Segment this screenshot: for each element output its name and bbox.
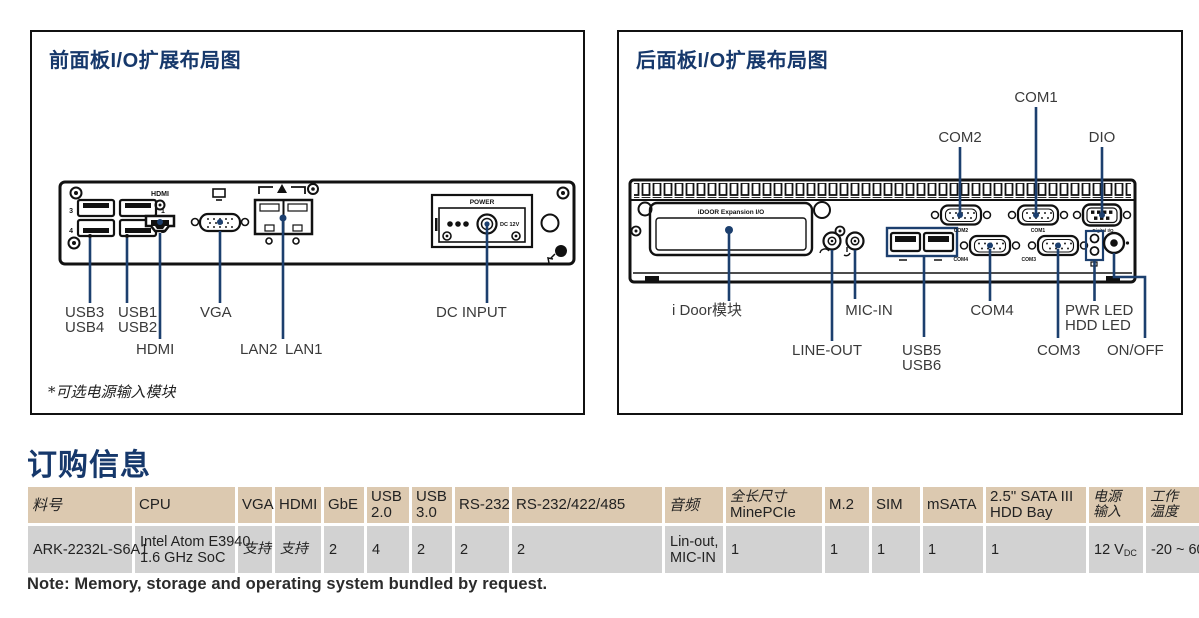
col-usb30: USB3.0 [412, 487, 452, 523]
col-m2: M.2 [825, 487, 869, 523]
cell-cpu-line1: Intel Atom E3940 [140, 534, 230, 550]
col-usb20-line2: 2.0 [371, 505, 405, 521]
col-power-input: 电源输入 [1089, 487, 1143, 523]
cell-minepcie: 1 [726, 526, 822, 573]
col-cpu: CPU [135, 487, 235, 523]
dc12v-text: DC 12V [500, 222, 520, 228]
cell-audio: Lin-out,MIC-IN [665, 526, 723, 573]
col-rs232-422-485: RS-232/422/485 [512, 487, 662, 523]
col-power-line1: 电源 [1093, 490, 1139, 505]
col-audio: 音频 [665, 487, 723, 523]
label-on-off: ON/OFF [1107, 342, 1164, 359]
col-gbe: GbE [324, 487, 364, 523]
col-usb20: USB2.0 [367, 487, 409, 523]
col-power-line2: 输入 [1093, 505, 1139, 520]
col-rs232: RS-232 [455, 487, 509, 523]
ground-screw-icon [555, 245, 567, 257]
cell-m2: 1 [825, 526, 869, 573]
usb4-number: 4 [69, 228, 73, 235]
cell-audio-line1: Lin-out, [670, 534, 718, 550]
rear-panel-box: 后面板I/O扩展布局图 iDOOR Expansion I/O [617, 30, 1183, 415]
cell-usb30: 2 [412, 526, 452, 573]
usb3-number: 3 [69, 208, 73, 215]
cell-cpu-line2: 1.6 GHz SoC [140, 550, 230, 566]
front-panel-box: 前面板I/O扩展布局图 3 4 [30, 30, 585, 415]
power-module-text: POWER [470, 199, 495, 206]
label-com3: COM3 [1037, 342, 1080, 359]
col-minepcie-line1: 全长尺寸 [730, 490, 818, 505]
col-sim: SIM [872, 487, 920, 523]
label-usb4: USB4 [65, 319, 104, 336]
label-usb2: USB2 [118, 319, 157, 336]
ordering-heading: 订购信息 [27, 440, 151, 484]
label-lan1: LAN1 [285, 341, 323, 358]
cell-usb20: 4 [367, 526, 409, 573]
label-hdd-led: HDD LED [1065, 317, 1131, 334]
label-lan2: LAN2 [240, 341, 278, 358]
cell-gbe: 2 [324, 526, 364, 573]
col-vga: VGA [238, 487, 272, 523]
col-hdmi: HDMI [275, 487, 321, 523]
table-row: ARK-2232L-S6A1 Intel Atom E39401.6 GHz S… [28, 526, 1199, 573]
col-temp-line1: 工作 [1150, 490, 1199, 505]
col-usb20-line1: USB [371, 489, 405, 505]
col-msata: mSATA [923, 487, 983, 523]
label-dc-input: DC INPUT [436, 304, 507, 321]
rear-panel-drawing: iDOOR Expansion I/O [619, 32, 1181, 412]
com2-port-text: COM2 [954, 228, 969, 234]
label-hdmi: HDMI [136, 341, 174, 358]
idoor-plate-text: iDOOR Expansion I/O [698, 209, 764, 216]
label-line-out: LINE-OUT [792, 342, 862, 359]
label-usb6: USB6 [902, 357, 941, 374]
col-temp-line2: 温度 [1150, 505, 1199, 520]
col-sata-line1: 2.5" SATA III [990, 489, 1082, 505]
label-com2: COM2 [938, 129, 981, 146]
label-vga: VGA [200, 304, 232, 321]
ordering-table: 料号 CPU VGA HDMI GbE USB2.0 USB3.0 RS-232… [25, 484, 1199, 576]
col-usb30-line2: 3.0 [416, 505, 448, 521]
label-com1: COM1 [1014, 89, 1057, 106]
label-mic-in: MIC-IN [845, 302, 893, 319]
cell-rs232-422-485: 2 [512, 526, 662, 573]
col-sata-bay: 2.5" SATA IIIHDD Bay [986, 487, 1086, 523]
datasheet-page: { "front_panel": { "title": "前面板I/O扩展布局图… [0, 0, 1199, 618]
front-panel-drawing: 3 4 1 2 HDMI [32, 32, 583, 412]
cell-audio-line2: MIC-IN [670, 550, 718, 566]
cell-sim: 1 [872, 526, 920, 573]
cell-op-temp: -20 ~ 60 °C [1146, 526, 1199, 573]
label-dio: DIO [1089, 129, 1116, 146]
table-header-row: 料号 CPU VGA HDMI GbE USB2.0 USB3.0 RS-232… [28, 487, 1199, 523]
hdmi-port-text: HDMI [151, 191, 169, 198]
cell-power-input: 12 VDC [1089, 526, 1143, 573]
label-com4: COM4 [970, 302, 1013, 319]
cell-sata-bay: 1 [986, 526, 1086, 573]
cell-msata: 1 [923, 526, 983, 573]
col-minepcie: 全长尺寸MinePCIe [726, 487, 822, 523]
cell-cpu: Intel Atom E39401.6 GHz SoC [135, 526, 235, 573]
front-panel-footnote: *可选电源输入模块 [48, 381, 176, 402]
label-idoor: i Door模块 [672, 302, 742, 319]
cell-rs232: 2 [455, 526, 509, 573]
cell-power-main: 12 V [1094, 542, 1124, 558]
col-sata-line2: HDD Bay [990, 505, 1082, 521]
cell-hdmi: 支持 [275, 526, 321, 573]
com3-port-text: COM3 [1022, 257, 1037, 263]
com1-port-text: COM1 [1031, 228, 1046, 234]
col-usb30-line1: USB [416, 489, 448, 505]
col-op-temp: 工作温度 [1146, 487, 1199, 523]
idoor-slot-icon: iDOOR Expansion I/O [632, 202, 845, 255]
cell-part-number: ARK-2232L-S6A1 [28, 526, 132, 573]
col-minepcie-line2: MinePCIe [730, 505, 818, 521]
cell-power-sub: DC [1124, 548, 1137, 558]
com4-port-text: COM4 [954, 257, 969, 263]
col-part-number: 料号 [28, 487, 132, 523]
power-module-icon: POWER DC 12V [432, 195, 532, 247]
ordering-note: Note: Memory, storage and operating syst… [27, 575, 547, 594]
